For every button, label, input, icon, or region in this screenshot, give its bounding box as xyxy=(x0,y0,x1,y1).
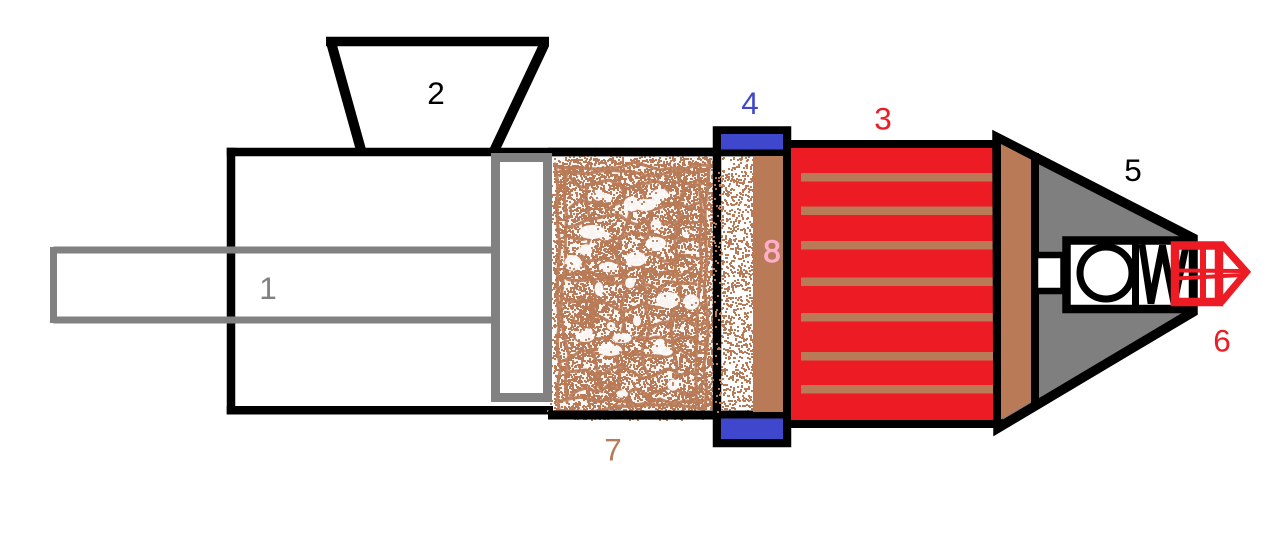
svg-text:3: 3 xyxy=(874,101,892,137)
svg-text:5: 5 xyxy=(1124,152,1142,188)
svg-text:6: 6 xyxy=(1213,323,1231,359)
svg-text:1: 1 xyxy=(259,270,277,306)
svg-text:2: 2 xyxy=(427,75,445,111)
svg-text:7: 7 xyxy=(604,432,622,468)
svg-text:4: 4 xyxy=(741,85,759,121)
svg-text:8: 8 xyxy=(763,233,781,269)
